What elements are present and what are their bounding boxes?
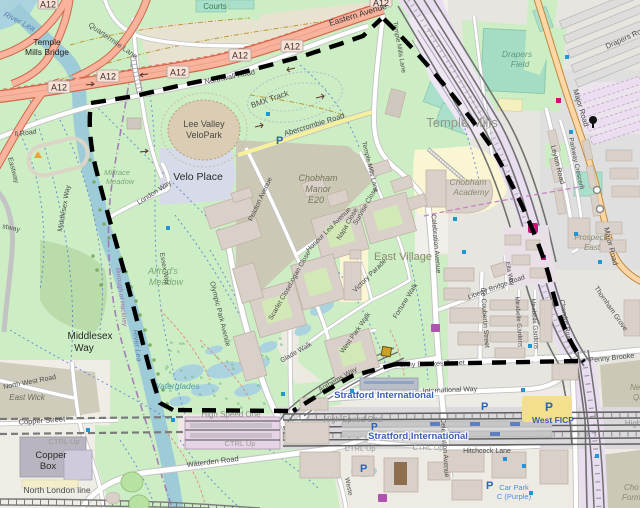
svg-text:Stratford International: Stratford International [334,390,434,401]
svg-text:C (Purple): C (Purple) [497,492,532,501]
svg-text:Temple Mills: Temple Mills [426,115,498,130]
svg-text:West FICP: West FICP [532,415,574,425]
svg-text:P: P [486,480,493,492]
svg-text:A12: A12 [170,68,186,78]
svg-text:P: P [371,422,378,433]
svg-text:A12: A12 [51,83,67,93]
svg-text:North London line: North London line [23,485,90,495]
svg-text:Lee Valley: Lee Valley [183,119,225,129]
svg-text:A12: A12 [40,0,56,10]
svg-text:P: P [276,135,283,147]
svg-text:Millrace: Millrace [104,168,130,177]
svg-text:Prospect: Prospect [574,233,606,242]
svg-text:High: High [625,419,640,428]
svg-text:Mills Bridge: Mills Bridge [25,47,69,57]
svg-text:East Wick: East Wick [9,393,45,402]
svg-text:CTRL Up: CTRL Up [49,437,80,446]
svg-text:Chobham: Chobham [450,177,487,187]
svg-text:P: P [545,400,553,414]
svg-text:P: P [360,463,367,475]
svg-text:Stratford International: Stratford International [368,431,468,442]
svg-text:Hitchcock Lane: Hitchcock Lane [463,448,511,455]
svg-text:VeloPark: VeloPark [186,130,223,140]
svg-text:Chobham: Chobham [298,173,338,183]
svg-text:East: East [584,243,601,252]
svg-text:Way: Way [74,343,94,354]
svg-text:Velo Place: Velo Place [173,171,223,183]
svg-text:A12: A12 [232,51,248,61]
svg-text:CTRL Up: CTRL Up [413,443,444,452]
svg-text:Copper: Copper [35,450,66,461]
svg-text:Manor: Manor [305,184,332,194]
svg-text:New G: New G [630,383,640,392]
svg-text:E20: E20 [308,195,324,205]
svg-text:Cho: Cho [624,483,639,492]
svg-text:Field: Field [511,59,530,69]
svg-text:Waterglades: Waterglades [152,381,200,391]
svg-text:A12: A12 [100,72,116,82]
svg-text:Academy: Academy [452,187,489,197]
svg-text:Car Park: Car Park [499,483,529,492]
svg-text:Courts: Courts [203,2,227,11]
svg-text:Box: Box [40,461,57,472]
svg-text:Temple: Temple [33,37,61,47]
svg-text:Form: Form [622,493,640,502]
svg-text:CTRL Up: CTRL Up [225,439,256,448]
svg-text:Drapers: Drapers [502,49,533,59]
svg-text:Meadow: Meadow [106,177,135,186]
svg-text:P: P [481,401,488,413]
svg-text:Middlesex: Middlesex [67,331,112,342]
svg-text:A12: A12 [284,42,300,52]
svg-text:CTRL Up: CTRL Up [345,444,376,453]
svg-text:Qu: Qu [633,393,640,402]
